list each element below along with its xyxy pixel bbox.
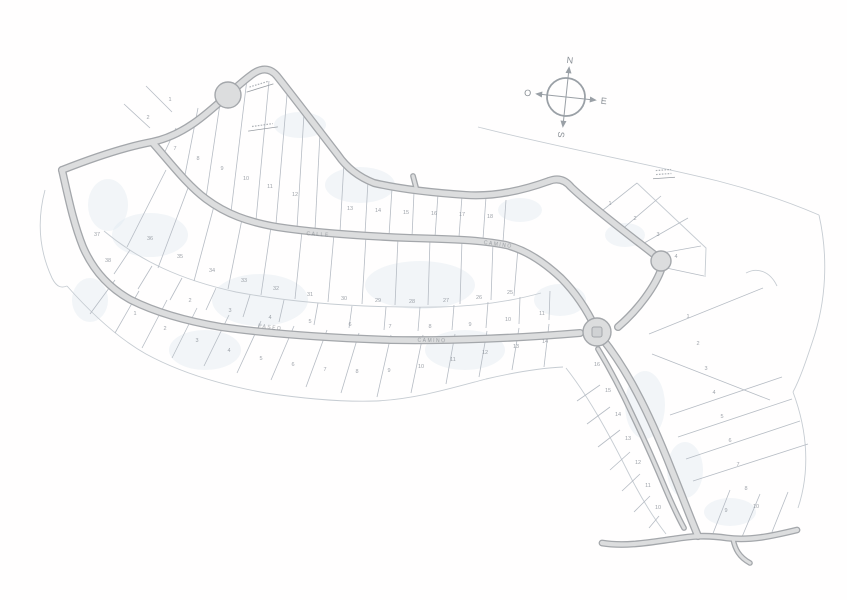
lot-number: 2 (633, 216, 636, 222)
compass-east-pointer (590, 97, 598, 104)
lot-line (598, 430, 620, 447)
lot-number: 4 (227, 348, 230, 354)
lot-number: 4 (674, 254, 677, 260)
lot-number: 6 (291, 362, 294, 368)
subdivision-plat-drawing: 7891011121314151617181234363534333231302… (0, 0, 847, 600)
lot-number: 15 (605, 388, 611, 394)
lot-line (412, 192, 414, 237)
boundary-lines (40, 127, 824, 534)
lot-number: 17 (459, 212, 465, 218)
lot-line (276, 95, 287, 224)
street-name-label: CALLE (306, 231, 330, 239)
lot-number: 4 (268, 315, 271, 321)
lot-line (315, 133, 320, 230)
lot-line (384, 307, 386, 330)
lot-number: 2 (163, 326, 166, 332)
lot-number: 10 (418, 364, 424, 370)
lot-number: 10 (505, 317, 511, 323)
lot-number: 7 (173, 146, 176, 152)
lot-number: 36 (147, 236, 153, 242)
lot-number: 1 (608, 201, 611, 207)
lot-line (486, 302, 488, 328)
lot-line (377, 335, 391, 397)
lot-number: 1 (133, 311, 136, 317)
lot-number: 8 (196, 156, 199, 162)
compass-label-east: E (600, 96, 607, 107)
lot-line (256, 81, 269, 220)
lot-number: 1 (168, 97, 171, 103)
lot-number: 14 (542, 339, 548, 345)
boundary-line (793, 215, 825, 392)
street-name-label: CAMINO (417, 338, 446, 345)
lot-line (138, 266, 152, 289)
lot-number: 6 (348, 322, 351, 328)
lot-number: 7 (323, 367, 326, 373)
lot-line (362, 236, 366, 304)
lot-number: 13 (347, 206, 353, 212)
lot-number: 2 (696, 341, 699, 347)
lot-number: 9 (724, 508, 727, 514)
lot-line (652, 354, 770, 400)
lot-number: 4 (712, 390, 715, 396)
lot-number: 12 (292, 192, 298, 198)
lot-number: 14 (615, 412, 621, 418)
lot-line (452, 305, 454, 330)
lot-number: 30 (341, 296, 347, 302)
lot-number: 5 (720, 414, 723, 420)
lot-number: 3 (195, 338, 198, 344)
survey-annotation (248, 123, 278, 131)
lot-number: 5 (259, 356, 262, 362)
lot-number: 31 (307, 292, 313, 298)
boundary-line (793, 392, 806, 508)
lot-line (693, 444, 808, 481)
lot-number: 11 (267, 184, 273, 190)
compass-label-north: N (566, 55, 574, 66)
lot-line (639, 218, 688, 246)
tint-patch (365, 261, 475, 309)
lot-number: 7 (388, 324, 391, 330)
lot-number: 2 (146, 115, 149, 121)
lot-line (678, 399, 792, 437)
lot-number: 8 (744, 486, 747, 492)
lot-number: 1 (686, 314, 689, 320)
lot-number: 6 (728, 438, 731, 444)
lot-number: 34 (209, 268, 215, 274)
lot-line (610, 452, 630, 470)
lot-number: 15 (403, 210, 409, 216)
lot-number: 13 (625, 436, 631, 442)
lot-number: 3 (704, 366, 707, 372)
lot-number: 7 (736, 462, 739, 468)
lot-line (620, 196, 661, 231)
lot-line (598, 183, 637, 214)
lot-number: 16 (431, 211, 437, 217)
compass-label-west: O (524, 88, 532, 99)
compass-rose: N S E O (520, 51, 611, 142)
tint-patch (72, 278, 108, 322)
lot-number: 27 (443, 298, 449, 304)
knuckle (651, 251, 671, 271)
compass-label-south: S (556, 131, 567, 138)
lot-line (389, 188, 392, 236)
lot-number: 32 (273, 286, 279, 292)
lot-number: 9 (387, 368, 390, 374)
lot-number: 5 (308, 319, 311, 325)
lot-number: 35 (177, 254, 183, 260)
lot-line (519, 297, 520, 324)
lot-number: 33 (241, 278, 247, 284)
lot-line (772, 492, 788, 532)
lot-line (544, 324, 549, 367)
lot-number: 29 (375, 298, 381, 304)
lot-number: 8 (428, 324, 431, 330)
plat-map-page: 7891011121314151617181234363534333231302… (0, 0, 847, 600)
bottom-stub-road-casing (733, 539, 750, 563)
lot-number: 9 (468, 322, 471, 328)
lot-number: 37 (94, 232, 100, 238)
lot-number: 11 (539, 311, 545, 317)
lot-number: 26 (476, 295, 482, 301)
boundary-line (40, 190, 67, 287)
lot-line (587, 407, 610, 424)
lot-line (114, 250, 130, 274)
lot-line (514, 248, 518, 296)
compass-north-pointer (566, 66, 573, 74)
lot-line (483, 197, 486, 239)
lot-number: 16 (594, 362, 600, 368)
lot-number: 10 (243, 176, 249, 182)
lot-number: 10 (655, 505, 661, 511)
lot-number: 2 (188, 298, 191, 304)
compass-south-pointer (560, 121, 567, 129)
boundary-line (746, 270, 777, 286)
lot-line (418, 307, 420, 331)
lot-line (170, 278, 182, 300)
lot-number: 18 (487, 214, 493, 220)
lot-number: 28 (409, 299, 415, 305)
lot-number: 3 (228, 308, 231, 314)
lot-line (622, 474, 640, 491)
lot-number: 9 (220, 166, 223, 172)
tint-patch (88, 179, 128, 231)
lot-line (649, 288, 763, 334)
lot-line (328, 234, 334, 302)
tint-patch (212, 274, 308, 326)
lot-line (314, 303, 318, 325)
lot-number: 10 (753, 504, 759, 510)
lot-number: 11 (645, 483, 651, 489)
lot-line (491, 242, 493, 300)
lot-number: 12 (482, 350, 488, 356)
lot-line (686, 421, 800, 459)
lot-number: 14 (375, 208, 381, 214)
compass-west-pointer (535, 91, 543, 98)
lot-number: 3 (656, 232, 659, 238)
roundabout-island (592, 327, 602, 337)
culdesac-bulb (215, 82, 241, 108)
lot-number: 25 (507, 290, 513, 296)
lot-number: 8 (355, 369, 358, 375)
lot-number: 12 (635, 460, 641, 466)
lot-number: 38 (105, 258, 111, 264)
lot-number: 13 (513, 344, 519, 350)
lot-number: 11 (450, 357, 456, 363)
